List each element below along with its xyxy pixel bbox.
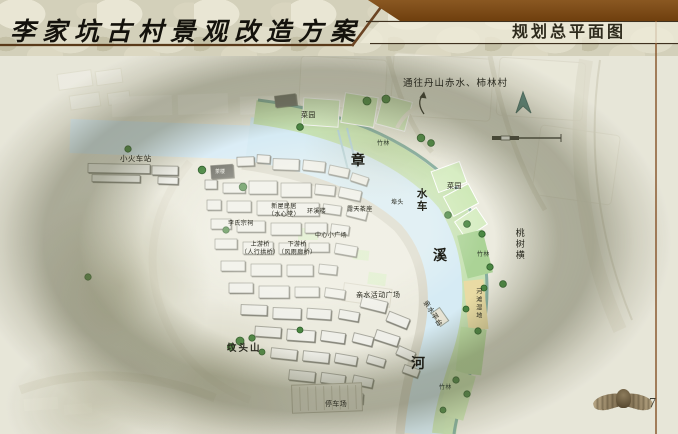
map-label-teahouse: 茶楼	[215, 169, 225, 176]
map-label-wharf: 埠头	[391, 200, 404, 208]
map-label-tea-seats: 露天茶座	[347, 207, 373, 215]
section-title-strip: 规划总平面图	[360, 22, 678, 43]
map-label-activity-plaza: 亲水活动广场	[356, 291, 400, 300]
section-title: 规划总平面图	[512, 22, 626, 43]
wing-ornament	[593, 387, 653, 420]
map-label-garden-top: 菜园	[301, 111, 316, 120]
page-number: 7	[649, 396, 656, 412]
map-label-bamboo-right: 竹林	[477, 252, 490, 260]
map-label-hill: 坟头山	[227, 343, 262, 355]
map-label-parking: 停车场	[325, 400, 347, 409]
site-plan-map: 通往丹山赤水、柿林村 小火车站 菜园 竹林 菜园 章 水车 溪 河 露天茶座 埠…	[0, 0, 678, 434]
map-label-central-plaza: 中心小广场	[315, 233, 347, 241]
map-label-station: 小火车站	[120, 154, 152, 164]
map-label-huanxi-tower: 环溪楼	[307, 209, 326, 217]
slide: 通往丹山赤水、柿林村 小火车站 菜园 竹林 菜园 章 水车 溪 河 露天茶座 埠…	[0, 0, 678, 434]
site-plan-art	[0, 0, 678, 434]
map-label-peach-row: 桃树横	[513, 228, 525, 261]
map-label-bamboo-top: 竹林	[377, 141, 390, 149]
map-label-river-zhang: 章	[351, 153, 365, 171]
map-label-river-xi: 溪	[433, 248, 447, 266]
map-label-shuixin-hall: 新屋民居 （水心堂）	[268, 204, 300, 220]
header-ribbon	[360, 0, 678, 21]
map-label-ancestral-hall: 李氏宗祠	[228, 221, 254, 229]
map-label-route-hint: 通往丹山赤水、柿林村	[403, 78, 508, 90]
map-label-bamboo-bottom: 竹林	[439, 385, 452, 393]
map-label-river-he: 河	[411, 356, 425, 374]
map-label-garden-right: 菜园	[447, 182, 462, 191]
map-label-river-beach: 河滩湿地	[473, 288, 481, 320]
map-label-bridge-upstream: 上游桥 （人行拱桥）	[241, 242, 279, 258]
map-label-bridge-downstream: 下游桥 （风雨廊桥）	[278, 242, 316, 258]
map-label-waterwheel: 水车	[414, 188, 428, 213]
wing-body-icon	[616, 389, 631, 408]
slide-title: 李家坑古村景观改造方案	[10, 12, 362, 48]
